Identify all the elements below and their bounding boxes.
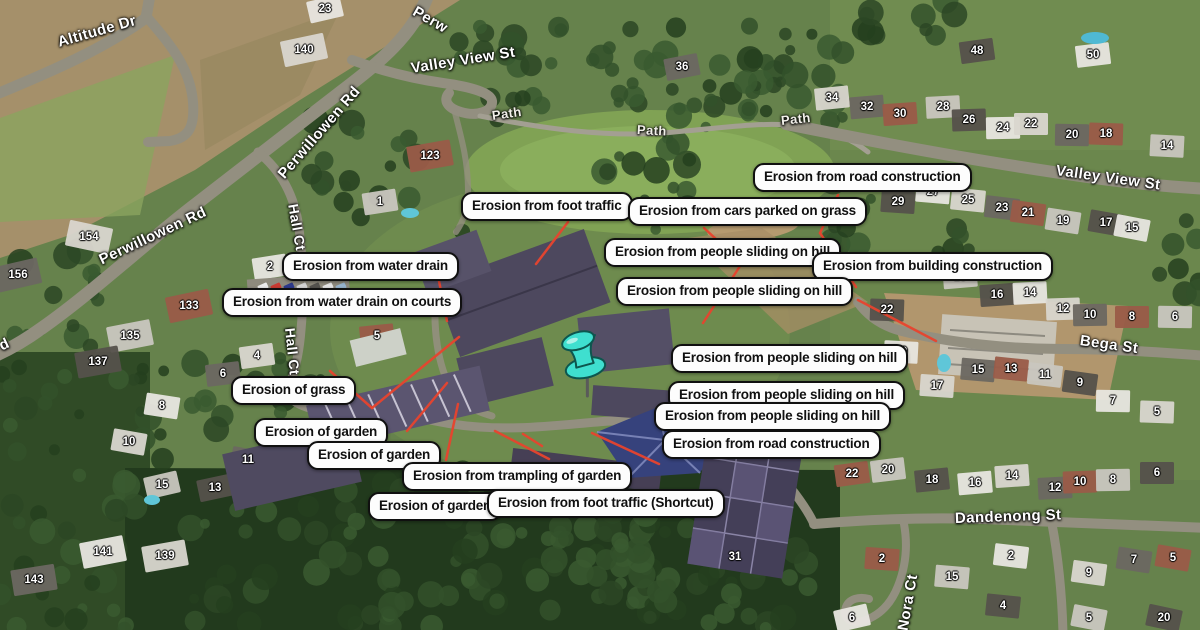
erosion-annotation-label[interactable]: Erosion from road construction (662, 430, 881, 459)
house-number: 14 (1161, 140, 1174, 152)
house-number: 15 (946, 571, 959, 583)
house-number: 19 (1057, 215, 1070, 227)
house-number: 5 (1154, 406, 1160, 418)
house-number: 10 (1084, 309, 1097, 321)
house-number: 15 (156, 479, 169, 491)
house-number: 5 (374, 330, 380, 342)
erosion-annotation-label[interactable]: Erosion from road construction (753, 163, 972, 192)
house-number: 140 (294, 44, 313, 56)
house-number: 154 (79, 231, 98, 243)
house-number: 22 (1025, 118, 1038, 130)
house-number: 24 (997, 122, 1010, 134)
house-number: 28 (937, 101, 950, 113)
house-number: 5 (1170, 552, 1176, 564)
house-number: 23 (996, 202, 1009, 214)
house-number: 6 (1172, 311, 1178, 323)
house-number: 6 (220, 368, 226, 380)
house-number: 10 (123, 436, 136, 448)
erosion-annotation-label[interactable]: Erosion from foot traffic (Shortcut) (487, 489, 725, 518)
house-number: 13 (209, 482, 222, 494)
house-number: 139 (155, 550, 174, 562)
erosion-annotation-label[interactable]: Erosion from water drain (282, 252, 459, 281)
house-number: 5 (1086, 612, 1092, 624)
street-label: Path (637, 122, 668, 139)
house-number: 2 (1008, 550, 1014, 562)
house-number: 15 (1126, 222, 1139, 234)
house-number: 20 (1158, 612, 1171, 624)
erosion-annotation-label[interactable]: Erosion from water drain on courts (222, 288, 462, 317)
house-number: 22 (881, 304, 894, 316)
house-number: 22 (846, 468, 859, 480)
house-number: 15 (972, 364, 985, 376)
house-number: 8 (1110, 474, 1116, 486)
house-number: 8 (1129, 311, 1135, 323)
house-number: 6 (849, 612, 855, 624)
house-number: 10 (1074, 476, 1087, 488)
house-number: 9 (1086, 567, 1092, 579)
house-number: 9 (1077, 377, 1083, 389)
satellite-map: Altitude DrPerwPerwillowen RdValley View… (0, 0, 1200, 630)
street-label: Path (780, 110, 811, 128)
house-number: 137 (88, 356, 107, 368)
house-number: 18 (926, 474, 939, 486)
house-number: 7 (1131, 554, 1137, 566)
house-number: 12 (1057, 303, 1070, 315)
house-number: 48 (971, 45, 984, 57)
erosion-annotation-label[interactable]: Erosion from foot traffic (461, 192, 633, 221)
house-number: 17 (1100, 217, 1113, 229)
house-number: 25 (962, 194, 975, 206)
erosion-annotation-label[interactable]: Erosion of grass (231, 376, 356, 405)
house-number: 156 (8, 269, 27, 281)
house-number: 31 (729, 551, 742, 563)
erosion-annotation-label[interactable]: Erosion from cars parked on grass (628, 197, 867, 226)
house-number: 29 (892, 196, 905, 208)
house-number: 26 (963, 114, 976, 126)
house-number: 50 (1087, 49, 1100, 61)
house-number: 1 (377, 196, 383, 208)
house-number: 2 (879, 553, 885, 565)
house-number: 21 (1022, 207, 1035, 219)
erosion-annotation-label[interactable]: Erosion of garden (368, 492, 502, 521)
erosion-annotation-label[interactable]: Erosion from people sliding on hill (616, 277, 853, 306)
erosion-annotation-label[interactable]: Erosion from building construction (812, 252, 1053, 281)
erosion-lines (0, 0, 1200, 630)
house-number: 7 (1110, 395, 1116, 407)
house-number: 18 (1100, 128, 1113, 140)
erosion-annotation-label[interactable]: Erosion from people sliding on hill (604, 238, 841, 267)
house-number: 16 (969, 477, 982, 489)
house-number: 143 (24, 574, 43, 586)
house-number: 36 (676, 61, 689, 73)
house-number: 11 (1039, 369, 1051, 381)
house-number: 34 (826, 92, 839, 104)
house-number: 8 (159, 400, 165, 412)
house-number: 30 (894, 108, 907, 120)
house-number: 16 (991, 289, 1004, 301)
erosion-annotation-label[interactable]: Erosion from people sliding on hill (671, 344, 908, 373)
house-number: 2 (267, 261, 273, 273)
house-number: 133 (179, 300, 198, 312)
erosion-annotation-label[interactable]: Erosion from trampling of garden (402, 462, 632, 491)
house-number: 32 (861, 101, 874, 113)
house-number: 4 (1000, 600, 1006, 612)
house-number: 123 (420, 150, 439, 162)
house-number: 17 (931, 380, 944, 392)
house-number: 23 (319, 3, 332, 15)
house-number: 141 (93, 546, 112, 558)
erosion-annotation-label[interactable]: Erosion from people sliding on hill (654, 402, 891, 431)
house-number: 20 (882, 464, 895, 476)
house-number: 20 (1066, 129, 1079, 141)
house-number: 6 (1154, 467, 1160, 479)
house-number: 14 (1024, 287, 1037, 299)
house-number: 12 (1049, 482, 1062, 494)
house-number: 11 (242, 454, 254, 466)
house-number: 13 (1005, 363, 1018, 375)
house-number: 135 (120, 330, 139, 342)
house-number: 14 (1006, 470, 1019, 482)
house-number: 4 (254, 350, 260, 362)
